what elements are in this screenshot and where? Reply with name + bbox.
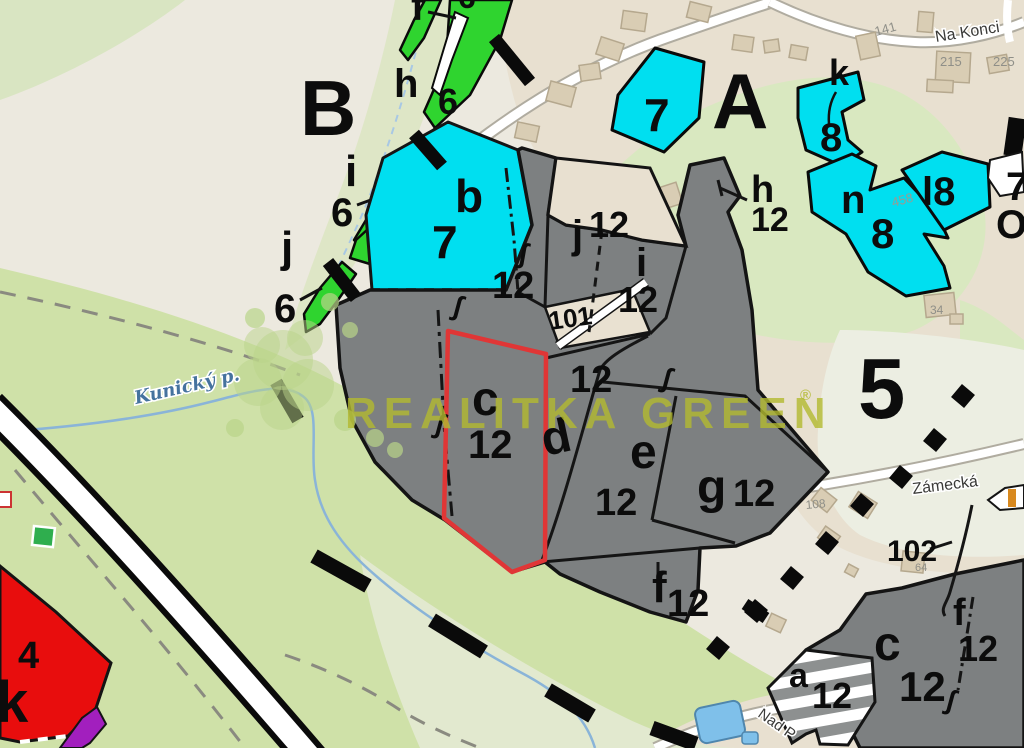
parcel-number-12-j: 12	[589, 204, 629, 245]
tree-canopy	[245, 308, 265, 328]
cadastral-map: BA5h6i6j6f6b77k8n8l8h12j12i121210112de12…	[0, 0, 1024, 748]
parcel-number-6-topcut: 6	[458, 0, 476, 15]
parcel-number-8-k: 8	[820, 116, 842, 160]
tree-canopy	[226, 419, 244, 437]
tree-canopy	[387, 442, 403, 458]
parcel-letter-f-mid: f	[652, 563, 667, 612]
watermark-registered: ®	[800, 387, 811, 404]
parcel-letter-k-cyan: k	[829, 52, 850, 93]
parcel-letter-f-topcut: f	[411, 0, 425, 29]
tree-canopy	[321, 293, 339, 311]
parcel-letter-g: g	[697, 461, 726, 514]
parcel-letter-c-br: c	[874, 618, 901, 671]
parcel-number-12-e: 12	[595, 482, 637, 524]
house-footprint	[789, 45, 808, 61]
house-number-64: 64	[915, 562, 927, 574]
house-footprint	[763, 39, 780, 53]
parcel-number-7-top: 7	[644, 89, 670, 141]
parcel-letter-b: b	[455, 170, 483, 222]
parcel-number-12-g: 12	[733, 473, 775, 515]
parcel-letter-j-left: j	[280, 223, 293, 272]
parcel-number-12-fbr: 12	[958, 628, 998, 669]
trail-marker-green	[32, 526, 55, 547]
zone-letter-A: A	[712, 57, 768, 145]
house-footprint	[927, 79, 954, 92]
map-viewport[interactable]: BA5h6i6j6f6b77k8n8l8h12j12i121210112de12…	[0, 0, 1024, 748]
parcel-number-12-s: 12	[492, 265, 534, 307]
house-number-108: 108	[805, 496, 826, 512]
house-footprint	[732, 35, 754, 53]
house-number-225: 225	[993, 54, 1015, 69]
parcel-number-12-f: 12	[667, 583, 709, 625]
tree-canopy	[244, 327, 280, 363]
zone-letter-B: B	[300, 64, 356, 152]
parcel-letter-n-cyan: n	[841, 178, 865, 222]
terrain-pale-zone5	[818, 330, 1024, 557]
parcel-letter-h-top: h	[394, 62, 418, 106]
tree-canopy	[342, 322, 358, 338]
parcel-letter-a: a	[789, 657, 809, 695]
parcel-number-6-strip: 6	[438, 81, 458, 122]
house-footprint	[579, 63, 601, 82]
parcel-number-6-lower: 6	[274, 287, 296, 331]
parcel-letter-i-left: i	[345, 147, 357, 196]
house-footprint	[917, 11, 934, 32]
parcel-number-101: 101	[547, 300, 594, 336]
zone-number-5: 5	[858, 342, 905, 437]
house-number-215: 215	[940, 54, 962, 69]
parcel-label-l8: l8	[922, 170, 955, 214]
tree-canopy	[260, 386, 304, 430]
house-footprint	[621, 10, 647, 31]
parcel-label-oz-cut: Oz	[996, 203, 1024, 247]
parcel-number-12-i: 12	[618, 279, 658, 320]
house-footprint	[515, 122, 540, 142]
zone-letter-k: k	[0, 670, 29, 735]
watermark-brand: REALITKA GREEN	[345, 389, 833, 438]
house-footprint	[950, 314, 963, 324]
marker-red-box	[0, 492, 11, 507]
parcel-number-102: 102	[887, 535, 937, 568]
house-number-34: 34	[930, 303, 944, 317]
parcel-number-12-cbr: 12	[899, 663, 946, 710]
parcel-letter-j12: j	[571, 213, 583, 257]
parcel-number-6-left: 6	[331, 191, 353, 235]
parcel-number-12-h: 12	[751, 201, 789, 239]
parcel-number-7-b: 7	[432, 216, 458, 268]
parcel-number-8-n: 8	[871, 210, 894, 257]
parcel-number-12-a: 12	[812, 675, 852, 716]
